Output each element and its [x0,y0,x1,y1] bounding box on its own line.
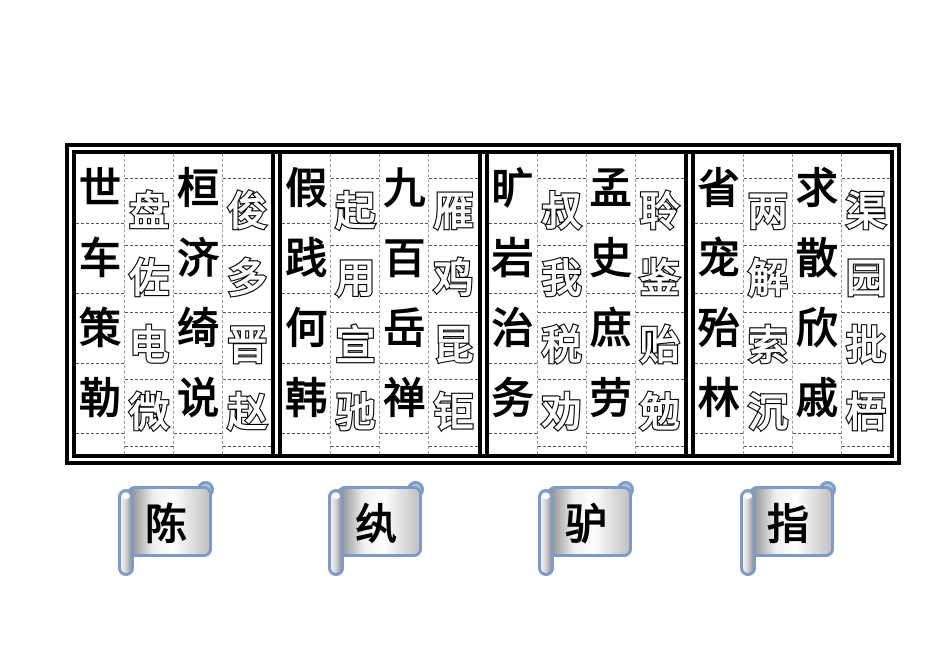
tile-character: 孟 [590,168,632,210]
character-tile-p2-c1-r3[interactable]: 何 [282,294,330,364]
tile-character: 治 [492,308,534,350]
character-tile-p2-c1-r2[interactable]: 践 [282,224,330,294]
character-tile-p3-c1-r2[interactable]: 岩 [489,224,537,294]
panel-divider-3 [684,154,695,454]
panel-1-column-3: 桓济绮说 [174,154,223,454]
board-panel-1: 世车策勒盘佐电微桓济绮说俊多晋赵 [76,154,271,454]
tile-character: 梧 [846,393,886,433]
answer-scroll-2[interactable]: 纨 [328,481,428,578]
character-tile-p4-c2-r3[interactable]: 索 [744,313,792,380]
tile-character: 渠 [846,192,886,232]
tile-character: 省 [698,168,740,210]
character-tile-p3-c1-r4[interactable]: 务 [489,364,537,434]
character-tile-p2-c3-r4[interactable]: 禅 [380,364,428,434]
scroll-character: 驴 [557,494,615,548]
answer-scroll-3[interactable]: 驴 [538,481,638,578]
character-tile-p3-c2-r1[interactable]: 叔 [538,179,586,246]
panel-2-column-4: 雁鸡昆钜 [429,154,477,454]
character-tile-p3-c2-r3[interactable]: 税 [538,313,586,380]
tile-character: 佐 [129,259,169,299]
tile-character: 劳 [590,378,632,420]
character-tile-p2-c4-r1[interactable]: 雁 [429,179,477,246]
tile-character: 两 [748,192,788,232]
tile-character: 禅 [383,378,425,420]
tile-character: 聆 [640,192,680,232]
tile-character: 鸡 [433,259,473,299]
panel-3-column-4: 聆鉴贻勉 [636,154,684,454]
tile-character: 叔 [542,192,582,232]
panel-1-column-1: 世车策勒 [76,154,125,454]
character-tile-p3-c3-r1[interactable]: 孟 [587,154,635,224]
character-tile-p2-c4-r4[interactable]: 钜 [429,380,477,447]
tile-character: 勉 [640,393,680,433]
tile-character: 林 [698,378,740,420]
panel-2-column-2: 起用宣驰 [331,154,380,454]
panel-3-column-1: 旷岩治务 [489,154,538,454]
tile-character: 绮 [177,308,219,350]
character-tile-p4-c1-r3[interactable]: 殆 [695,294,743,364]
tile-character: 起 [335,192,375,232]
tile-character: 戚 [796,378,838,420]
character-tile-p4-c2-r1[interactable]: 两 [744,179,792,246]
character-tile-p4-c1-r4[interactable]: 林 [695,364,743,434]
character-tile-p1-c3-r1[interactable]: 桓 [174,154,222,224]
character-board: 世车策勒盘佐电微桓济绮说俊多晋赵假践何韩起用宣驰九百岳禅雁鸡昆钜旷岩治务叔我税劝… [65,143,901,465]
tile-character: 赵 [227,393,267,433]
character-tile-p3-c4-r2[interactable]: 鉴 [636,246,684,313]
tile-character: 岩 [492,238,534,280]
tile-character: 车 [79,238,121,280]
tile-character: 求 [796,168,838,210]
tile-character: 桓 [177,168,219,210]
tile-character: 园 [846,259,886,299]
character-tile-p4-c3-r4[interactable]: 戚 [793,364,841,434]
scroll-roll-icon [118,489,134,576]
tile-character: 百 [383,238,425,280]
character-tile-p1-c1-r1[interactable]: 世 [76,154,124,224]
tile-character: 税 [542,326,582,366]
tile-character: 晋 [227,326,267,366]
panel-2-column-1: 假践何韩 [282,154,331,454]
slide-canvas: 世车策勒盘佐电微桓济绮说俊多晋赵假践何韩起用宣驰九百岳禅雁鸡昆钜旷岩治务叔我税劝… [0,0,950,672]
board-panel-3: 旷岩治务叔我税劝孟史庶劳聆鉴贻勉 [489,154,684,454]
character-board-inner: 世车策勒盘佐电微桓济绮说俊多晋赵假践何韩起用宣驰九百岳禅雁鸡昆钜旷岩治务叔我税劝… [72,150,894,458]
panel-3-column-3: 孟史庶劳 [587,154,636,454]
character-tile-p1-c3-r2[interactable]: 济 [174,224,222,294]
character-tile-p2-c1-r1[interactable]: 假 [282,154,330,224]
tile-character: 旷 [492,168,534,210]
panel-4-column-3: 求散欣戚 [793,154,842,454]
character-tile-p4-c4-r4[interactable]: 梧 [842,380,890,447]
tile-character: 多 [227,259,267,299]
character-tile-p3-c1-r1[interactable]: 旷 [489,154,537,224]
character-tile-p1-c2-r4[interactable]: 微 [125,380,173,447]
tile-character: 俊 [227,192,267,232]
character-tile-p4-c1-r1[interactable]: 省 [695,154,743,224]
character-tile-p2-c2-r4[interactable]: 驰 [331,380,379,447]
character-tile-p2-c4-r2[interactable]: 鸡 [429,246,477,313]
character-tile-p1-c1-r2[interactable]: 车 [76,224,124,294]
tile-character: 九 [383,168,425,210]
character-tile-p2-c2-r2[interactable]: 用 [331,246,379,313]
tile-character: 批 [846,326,886,366]
panel-4-column-1: 省宠殆林 [695,154,744,454]
tile-character: 岳 [383,308,425,350]
character-tile-p2-c4-r3[interactable]: 昆 [429,313,477,380]
character-tile-p1-c3-r3[interactable]: 绮 [174,294,222,364]
tile-character: 雁 [433,192,473,232]
panel-divider-1 [271,154,282,454]
character-tile-p2-c2-r3[interactable]: 宣 [331,313,379,380]
tile-character: 世 [79,168,121,210]
character-tile-p1-c1-r4[interactable]: 勒 [76,364,124,434]
panel-3-column-2: 叔我税劝 [538,154,587,454]
tile-character: 宠 [698,238,740,280]
character-tile-p4-c1-r2[interactable]: 宠 [695,224,743,294]
tile-character: 何 [285,308,327,350]
board-panel-4: 省宠殆林两解索沉求散欣戚渠园批梧 [695,154,890,454]
tile-character: 史 [590,238,632,280]
scroll-character: 陈 [137,494,195,548]
character-tile-p4-c4-r3[interactable]: 批 [842,313,890,380]
character-tile-p4-c3-r3[interactable]: 欣 [793,294,841,364]
tile-character: 假 [285,168,327,210]
tile-character: 劝 [542,393,582,433]
tile-character: 微 [129,393,169,433]
board-panel-2: 假践何韩起用宣驰九百岳禅雁鸡昆钜 [282,154,477,454]
tile-character: 策 [79,308,121,350]
character-tile-p3-c4-r1[interactable]: 聆 [636,179,684,246]
answer-scroll-4[interactable]: 指 [740,481,840,578]
answer-scroll-1[interactable]: 陈 [118,481,218,578]
character-tile-p4-c4-r1[interactable]: 渠 [842,179,890,246]
scroll-character: 纨 [347,494,405,548]
character-tile-p3-c3-r3[interactable]: 庶 [587,294,635,364]
tile-character: 沉 [748,393,788,433]
character-tile-p3-c1-r3[interactable]: 治 [489,294,537,364]
character-tile-p3-c3-r4[interactable]: 劳 [587,364,635,434]
panel-4-column-2: 两解索沉 [744,154,793,454]
tile-character: 驰 [335,393,375,433]
character-tile-p1-c2-r3[interactable]: 电 [125,313,173,380]
panel-2-column-3: 九百岳禅 [380,154,429,454]
tile-character: 电 [129,326,169,366]
character-tile-p3-c2-r2[interactable]: 我 [538,246,586,313]
character-tile-p4-c3-r2[interactable]: 散 [793,224,841,294]
tile-character: 韩 [285,378,327,420]
character-tile-p3-c2-r4[interactable]: 劝 [538,380,586,447]
character-tile-p1-c1-r3[interactable]: 策 [76,294,124,364]
tile-character: 我 [542,259,582,299]
tile-character: 解 [748,259,788,299]
tile-character: 践 [285,238,327,280]
scroll-roll-icon [538,489,554,576]
panel-divider-2 [478,154,489,454]
tile-character: 宣 [335,326,375,366]
panel-1-column-2: 盘佐电微 [125,154,174,454]
tile-character: 济 [177,238,219,280]
tile-character: 索 [748,326,788,366]
character-tile-p4-c4-r2[interactable]: 园 [842,246,890,313]
character-tile-p2-c2-r1[interactable]: 起 [331,179,379,246]
tile-character: 务 [492,378,534,420]
tile-character: 散 [796,238,838,280]
tile-character: 钜 [433,393,473,433]
tile-character: 鉴 [640,259,680,299]
scroll-roll-icon [740,489,756,576]
character-tile-p4-c3-r1[interactable]: 求 [793,154,841,224]
character-tile-p1-c3-r4[interactable]: 说 [174,364,222,434]
character-tile-p4-c2-r4[interactable]: 沉 [744,380,792,447]
tile-character: 殆 [698,308,740,350]
character-tile-p1-c4-r1[interactable]: 俊 [223,179,271,246]
character-tile-p2-c3-r1[interactable]: 九 [380,154,428,224]
tile-character: 欣 [796,308,838,350]
character-tile-p1-c4-r4[interactable]: 赵 [223,380,271,447]
scroll-roll-icon [328,489,344,576]
character-tile-p2-c3-r2[interactable]: 百 [380,224,428,294]
panel-4-column-4: 渠园批梧 [842,154,890,454]
character-tile-p1-c4-r2[interactable]: 多 [223,246,271,313]
character-tile-p3-c4-r4[interactable]: 勉 [636,380,684,447]
character-tile-p1-c4-r3[interactable]: 晋 [223,313,271,380]
tile-character: 庶 [590,308,632,350]
tile-character: 昆 [433,326,473,366]
character-tile-p1-c2-r2[interactable]: 佐 [125,246,173,313]
character-tile-p1-c2-r1[interactable]: 盘 [125,179,173,246]
character-tile-p3-c4-r3[interactable]: 贻 [636,313,684,380]
tile-character: 盘 [129,192,169,232]
panel-1-column-4: 俊多晋赵 [223,154,271,454]
tile-character: 勒 [79,378,121,420]
character-tile-p4-c2-r2[interactable]: 解 [744,246,792,313]
character-tile-p3-c3-r2[interactable]: 史 [587,224,635,294]
tile-character: 贻 [640,326,680,366]
tile-character: 用 [335,259,375,299]
tile-character: 说 [177,378,219,420]
scroll-character: 指 [759,494,817,548]
character-tile-p2-c3-r3[interactable]: 岳 [380,294,428,364]
character-tile-p2-c1-r4[interactable]: 韩 [282,364,330,434]
